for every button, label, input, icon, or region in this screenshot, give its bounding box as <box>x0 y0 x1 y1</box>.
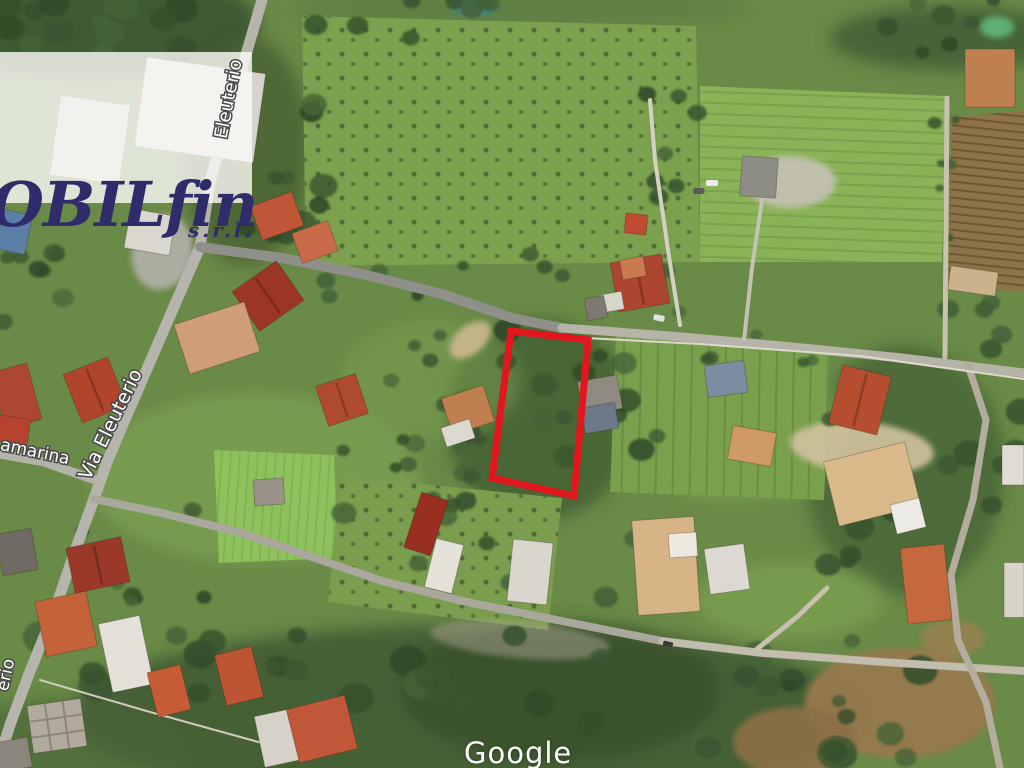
trees-mid-band-blob <box>649 429 666 443</box>
trees-bottom-band-blob <box>393 650 417 671</box>
trees-topright-blob <box>931 5 955 25</box>
trees-parcel-blob <box>611 352 637 374</box>
trees-bottom-right-blob <box>895 748 917 767</box>
building-villa-bottom-mid-white <box>668 532 698 558</box>
building-orange-complex-north <box>619 256 646 280</box>
trees-bottom-band-blob <box>576 711 606 736</box>
building-east-parcel-blue-roof <box>581 402 619 434</box>
trees-right-edge-blob <box>991 326 1012 344</box>
building-tan-house-right-roof <box>727 425 776 466</box>
building-white-mid-bottom-roof <box>507 539 553 605</box>
trees-topleft-blob <box>92 15 109 29</box>
building-orange-bottomleft-1-roof <box>35 591 98 657</box>
trees-topright-blob <box>877 18 898 36</box>
trees-lane-blob <box>670 89 687 103</box>
trees-bottom-band-blob <box>415 662 450 692</box>
building-grey-left-edge-roof <box>0 528 38 576</box>
trees-lane-blob <box>646 174 664 189</box>
trees-bottom-right-blob <box>733 666 759 688</box>
trees-road-strip-top-blob <box>309 197 329 214</box>
trees-bottom-right-blob <box>695 736 721 758</box>
trees-bottom-band-blob <box>166 627 187 645</box>
trees-topleft-blob <box>150 7 177 30</box>
building-orange-complex-north-roof <box>619 256 646 280</box>
building-grey-house-topright-roof <box>740 156 779 198</box>
car-2 <box>694 188 705 194</box>
field-east-of-parcel-texture <box>610 336 830 500</box>
building-villa-bottom-mid-white-roof <box>668 532 698 558</box>
trees-road-strip-top-blob <box>301 94 327 116</box>
car-1 <box>706 180 718 186</box>
building-right-edge-partial-1 <box>1002 445 1024 485</box>
building-shed-field-roof <box>253 478 285 506</box>
trees-road-strip-top-blob <box>309 174 337 198</box>
building-east-parcel-blue <box>581 402 619 434</box>
trees-west-parcel-blob <box>400 457 417 472</box>
building-pool-house-topright-roof <box>965 49 1015 107</box>
trees-right-edge-blob <box>937 300 959 319</box>
trees-lane-blob <box>638 87 656 102</box>
trees-mid-band-blob <box>594 587 619 608</box>
trees-bottom-band-blob <box>265 661 282 676</box>
trees-bottom-band-blob <box>450 693 473 713</box>
trees-west-parcel-blob <box>408 340 421 351</box>
trees-bottom-right-blob <box>877 722 905 745</box>
trees-left-strip-blob <box>52 289 73 307</box>
building-shed-field <box>253 478 285 506</box>
trees-hedge-top-blob <box>935 184 944 191</box>
trees-bottom-band-blob <box>187 683 210 703</box>
trees-lane-blob <box>688 105 707 121</box>
trees-right-forest-blob <box>815 554 841 576</box>
trees-top-mid-blob <box>347 16 368 34</box>
trees-bottom-right-blob <box>757 677 780 697</box>
trees-right-forest-blob <box>840 555 856 568</box>
trees-mid-band-blob <box>331 502 356 523</box>
building-white-mid-bottom <box>507 539 553 605</box>
trees-top-mid-blob <box>402 30 420 45</box>
trees-bottom-band-blob <box>590 648 612 667</box>
trees-bottomleft-houses-blob <box>125 596 138 607</box>
building-villa-white <box>890 498 926 534</box>
building-villa-bottom-mid <box>632 516 700 615</box>
trees-bottom-band-blob <box>502 625 526 646</box>
trees-west-parcel-blob <box>422 353 438 367</box>
building-blue-house-right <box>704 360 748 397</box>
building-red-small-north-roof <box>624 213 648 235</box>
trees-parcel-blob <box>531 373 558 396</box>
trees-north-road-blob <box>457 261 468 271</box>
trees-bottom-right-blob <box>837 709 855 724</box>
trees-north-road-blob <box>522 247 539 262</box>
trees-topright-blob <box>891 39 909 55</box>
building-terracotta-right <box>900 544 952 624</box>
building-tan-house-right <box>727 425 776 466</box>
agency-watermark-logo: OBILfin s.r.l. <box>0 52 252 203</box>
building-terracotta-right-roof <box>900 544 952 624</box>
trees-mid-band-blob <box>409 555 428 571</box>
building-right-edge-partial-1-roof <box>1002 445 1024 485</box>
field-vineyard-brown-texture <box>948 110 1024 292</box>
trees-hedge-top-blob <box>928 117 942 129</box>
trees-road-strip-top-blob <box>268 171 284 185</box>
trees-north-road-blob <box>555 269 570 282</box>
trees-lane-blob <box>657 147 673 161</box>
trees-west-parcel-blob <box>397 434 410 445</box>
trees-hedge-top-blob <box>937 160 945 167</box>
building-red-amarina <box>0 415 31 445</box>
building-grey-small-north <box>584 295 608 321</box>
trees-bottom-right-blob <box>782 680 796 692</box>
building-red-amarina-roof <box>0 415 31 445</box>
path-farm-right <box>945 98 947 357</box>
trees-left-strip-blob <box>49 247 65 261</box>
trees-bottom-band-blob <box>283 660 308 681</box>
trees-right-forest-blob <box>981 496 1002 514</box>
building-blue-house-right-roof <box>704 360 748 397</box>
trees-hedge-top-blob <box>951 116 960 123</box>
trees-topleft-blob <box>43 18 74 44</box>
trees-parcel-blob <box>556 410 572 424</box>
building-pool-house-topright <box>965 49 1015 107</box>
trees-topright-blob <box>964 16 980 29</box>
trees-north-road-blob <box>537 260 553 274</box>
trees-right-mid-blob <box>703 351 719 364</box>
trees-mid-band-blob <box>337 445 350 456</box>
building-red-small-north <box>624 213 648 235</box>
trees-mid-band-blob <box>478 536 495 550</box>
pool-topright <box>980 16 1014 38</box>
building-villa-bottom-mid-roof <box>632 516 700 615</box>
trees-topright-blob <box>915 46 929 58</box>
building-white-right-roof <box>704 543 750 594</box>
trees-right-mid-blob <box>798 357 810 367</box>
trees-right-mid-blob <box>750 330 762 340</box>
trees-north-road-blob <box>316 272 335 288</box>
trees-bottom-band-blob <box>288 627 307 643</box>
trees-parcel-blob <box>534 412 553 428</box>
building-grey-small-north-roof <box>584 295 608 321</box>
trees-parcel-blob <box>463 470 480 484</box>
trees-west-parcel-blob <box>383 374 399 388</box>
trees-bottom-band-blob <box>79 662 106 685</box>
trees-bottom-band-blob <box>524 691 554 717</box>
building-orange-bottomleft-1 <box>35 591 98 657</box>
trees-left-strip-blob <box>29 261 49 278</box>
trees-north-road-blob <box>321 289 337 303</box>
building-ruin-grid <box>27 698 87 753</box>
trees-bottom-band-blob <box>844 634 860 648</box>
trees-bottom-right-blob <box>822 741 847 763</box>
trees-mid-band-blob <box>628 438 655 461</box>
trees-bottomleft-houses-blob <box>196 591 211 604</box>
trees-top-mid-blob <box>304 15 328 35</box>
satellite-map-image: OBILfin s.r.l. EleuterioVia Eleuterioama… <box>0 0 1024 768</box>
agency-logo-suffix: s.r.l. <box>188 220 254 240</box>
building-grey-house-topright <box>740 156 779 198</box>
building-bottomleft-corner-roof <box>0 737 32 768</box>
trees-lane-blob <box>668 179 685 194</box>
building-right-edge-partial-2 <box>1004 563 1024 618</box>
building-white-right <box>704 543 750 594</box>
building-right-edge-partial-2-roof <box>1004 563 1024 618</box>
trees-bottom-right-blob <box>832 695 846 707</box>
building-ruin-grid-roof <box>27 698 87 753</box>
trees-bottom-band-blob <box>199 630 226 653</box>
trees-topright-blob <box>941 37 958 51</box>
trees-parcel-blob <box>592 350 607 363</box>
building-villa-white-roof <box>890 498 926 534</box>
trees-west-parcel-blob <box>433 330 446 341</box>
building-grey-left-edge <box>0 528 38 576</box>
building-bottomleft-corner <box>0 737 32 768</box>
trees-mid-band-blob <box>390 462 402 472</box>
trees-right-edge-blob <box>975 302 994 318</box>
google-watermark: Google <box>464 736 572 768</box>
